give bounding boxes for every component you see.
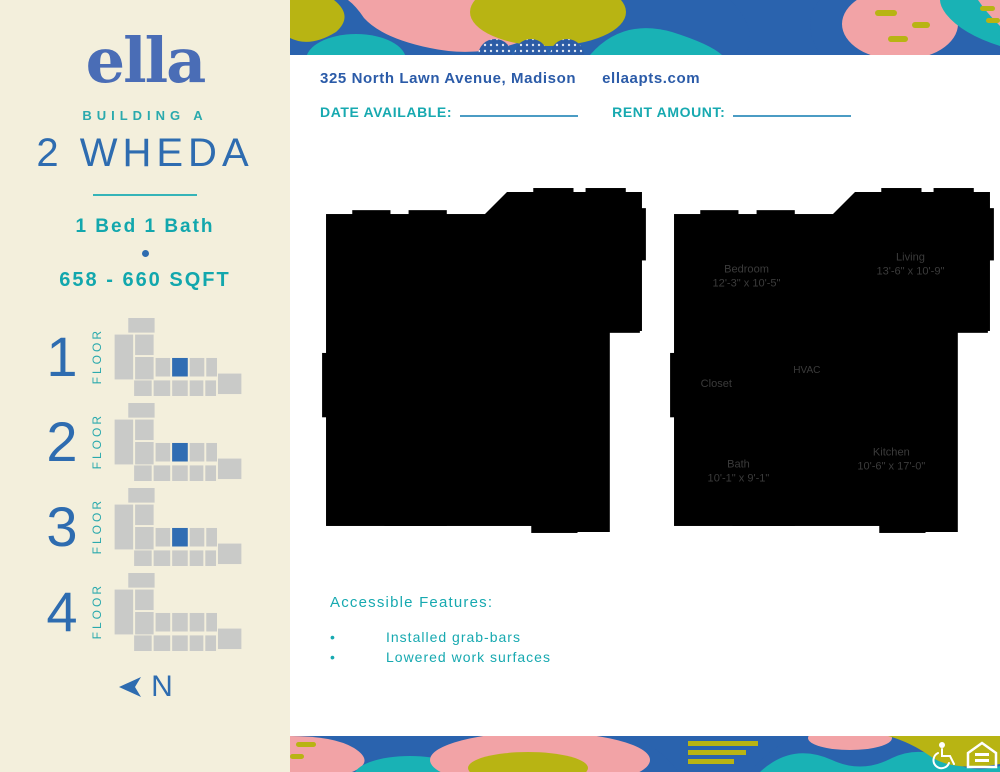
accessible-features-heading: Accessible Features: [330, 594, 1000, 611]
floor-label: FLOOR [90, 328, 104, 384]
floor-number: 4 [40, 584, 84, 640]
floor-minimap [114, 488, 242, 566]
room-dims-kitchen: 10'-6" x 17'-0" [857, 461, 925, 473]
floor-row-1: 1 FLOOR [0, 314, 290, 399]
room-label-bath: Bath [727, 459, 750, 471]
accessible-features-list: •Installed grab-bars •Lowered work surfa… [330, 629, 1000, 665]
room-dims-bedroom: 12'-3" x 10'-5" [713, 278, 781, 290]
divider [93, 194, 197, 196]
rent-amount-field[interactable] [733, 103, 851, 117]
header: 325 North Lawn Avenue, Madisonellaapts.c… [320, 70, 1000, 120]
floor-minimap [114, 318, 242, 396]
room-label-bedroom: Bedroom [724, 263, 769, 275]
feature-text: Installed grab-bars [386, 629, 521, 645]
feature-item: •Installed grab-bars [330, 629, 1000, 645]
ella-logo: ella [0, 30, 290, 92]
floor-label: FLOOR [90, 413, 104, 469]
feature-text: Lowered work surfaces [386, 649, 551, 665]
north-arrow-icon [117, 675, 143, 699]
floor-number: 2 [40, 414, 84, 470]
north-indicator: N [0, 670, 290, 704]
main-panel: 325 North Lawn Avenue, Madisonellaapts.c… [290, 0, 1000, 772]
floor-plan-furnished [318, 184, 652, 542]
square-footage: 658 - 660 SQFT [0, 269, 290, 292]
address: 325 North Lawn Avenue, Madison [320, 70, 576, 87]
feature-item: •Lowered work surfaces [330, 649, 1000, 665]
building-label: BUILDING A [0, 108, 290, 123]
bullet: • [330, 629, 386, 645]
room-label-hvac: HVAC [793, 365, 820, 376]
website-link[interactable]: ellaapts.com [602, 70, 700, 87]
date-available-field[interactable] [460, 103, 578, 117]
rent-amount-label: RENT AMOUNT: [612, 104, 725, 120]
top-decorative-band [290, 0, 1000, 55]
floor-locator-list: 1 FLOOR 2 FLOOR 3 FLOOR 4 FLOOR [0, 314, 290, 654]
accessible-features: Accessible Features: •Installed grab-bar… [330, 594, 1000, 665]
flyer-page: ella BUILDING A 2 WHEDA 1 Bed 1 Bath 658… [0, 0, 1000, 772]
floor-plans: Bedroom 12'-3" x 10'-5" Living 13'-6" x … [318, 184, 1000, 542]
room-label-closet: Closet [701, 378, 732, 390]
north-label: N [151, 670, 173, 704]
sidebar: ella BUILDING A 2 WHEDA 1 Bed 1 Bath 658… [0, 0, 290, 772]
date-available-label: DATE AVAILABLE: [320, 104, 452, 120]
room-label-living: Living [896, 251, 925, 263]
bullet-dot [142, 250, 149, 257]
room-dims-living: 13'-6" x 10'-9" [876, 266, 944, 278]
bottom-decorative-band [290, 736, 1000, 772]
plan-name: 2 WHEDA [0, 131, 290, 176]
floor-number: 1 [40, 329, 84, 385]
bullet: • [330, 649, 386, 665]
floor-label: FLOOR [90, 583, 104, 639]
beds-baths: 1 Bed 1 Bath [0, 216, 290, 238]
floor-plan-schematic: Bedroom 12'-3" x 10'-5" Living 13'-6" x … [666, 184, 1000, 542]
floor-row-2: 2 FLOOR [0, 399, 290, 484]
floor-row-3: 3 FLOOR [0, 484, 290, 569]
floor-minimap [114, 573, 242, 651]
floor-row-4: 4 FLOOR [0, 569, 290, 654]
room-dims-bath: 10'-1" x 9'-1" [708, 473, 770, 485]
room-label-kitchen: Kitchen [873, 447, 910, 459]
floor-minimap [114, 403, 242, 481]
floor-number: 3 [40, 499, 84, 555]
floor-label: FLOOR [90, 498, 104, 554]
